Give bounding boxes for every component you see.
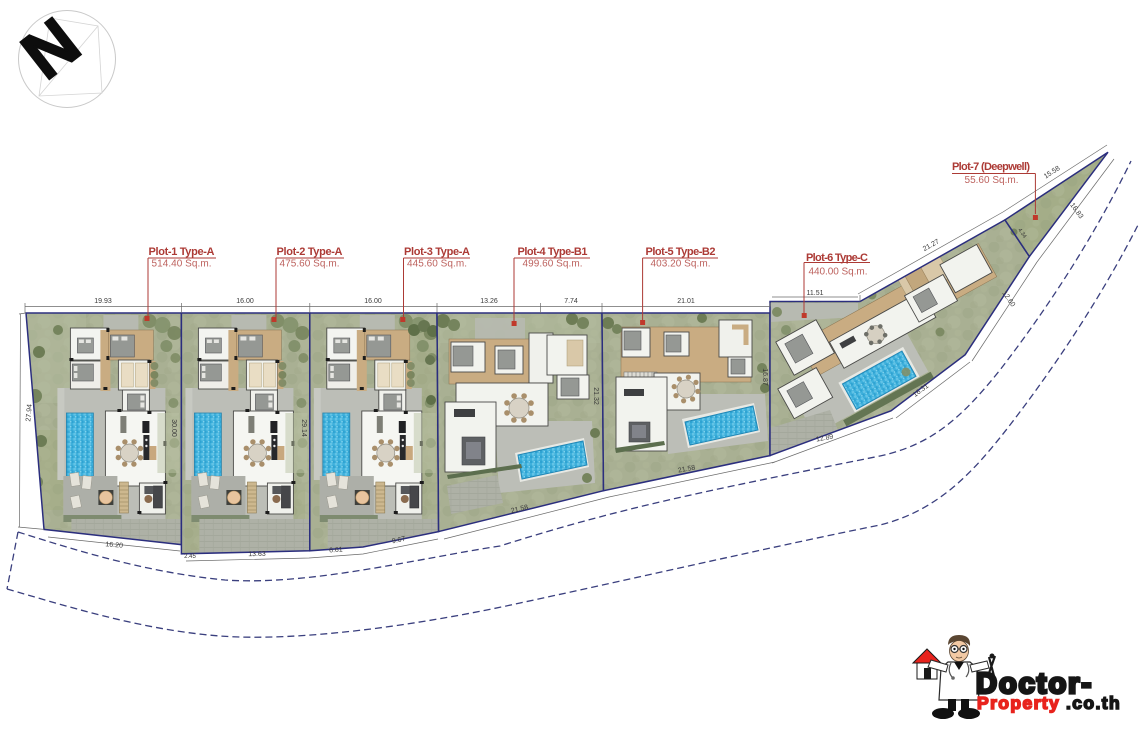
svg-text:13.26: 13.26 — [480, 298, 498, 305]
svg-text:16.87: 16.87 — [761, 368, 768, 386]
svg-text:Plot-1 Type-A: Plot-1 Type-A — [149, 246, 215, 258]
svg-text:445.60 Sq.m.: 445.60 Sq.m. — [407, 259, 467, 270]
svg-text:2.45: 2.45 — [184, 554, 196, 560]
svg-text:Plot-4 Type-B1: Plot-4 Type-B1 — [518, 246, 588, 258]
svg-text:Plot-7 (Deepwell): Plot-7 (Deepwell) — [952, 161, 1030, 173]
svg-text:Plot-2 Type-A: Plot-2 Type-A — [277, 246, 343, 258]
svg-text:403.20 Sq.m.: 403.20 Sq.m. — [651, 259, 711, 270]
svg-text:11.51: 11.51 — [807, 290, 824, 297]
svg-text:475.60 Sq.m.: 475.60 Sq.m. — [280, 259, 340, 270]
svg-text:16.00: 16.00 — [236, 298, 254, 305]
svg-text:29.14: 29.14 — [300, 419, 307, 437]
svg-text:6.61: 6.61 — [329, 547, 343, 555]
svg-text:499.60 Sq.m.: 499.60 Sq.m. — [523, 259, 583, 270]
svg-text:30.00: 30.00 — [170, 419, 177, 437]
svg-text:19.93: 19.93 — [94, 298, 112, 305]
svg-text:514.40 Sq.m.: 514.40 Sq.m. — [152, 259, 212, 270]
svg-text:21.01: 21.01 — [677, 298, 695, 305]
svg-text:Plot-5 Type-B2: Plot-5 Type-B2 — [646, 246, 716, 258]
svg-text:21.32: 21.32 — [592, 387, 599, 405]
svg-text:16.00: 16.00 — [364, 298, 382, 305]
svg-text:7.74: 7.74 — [564, 298, 578, 305]
svg-text:13.63: 13.63 — [248, 551, 266, 558]
svg-text:440.00 Sq.m.: 440.00 Sq.m. — [809, 267, 868, 278]
svg-text:Property: Property — [977, 693, 1060, 713]
svg-text:.co.th: .co.th — [1066, 693, 1121, 713]
svg-text:Plot-3 Type-A: Plot-3 Type-A — [404, 246, 470, 258]
svg-text:55.60 Sq.m.: 55.60 Sq.m. — [965, 175, 1019, 186]
